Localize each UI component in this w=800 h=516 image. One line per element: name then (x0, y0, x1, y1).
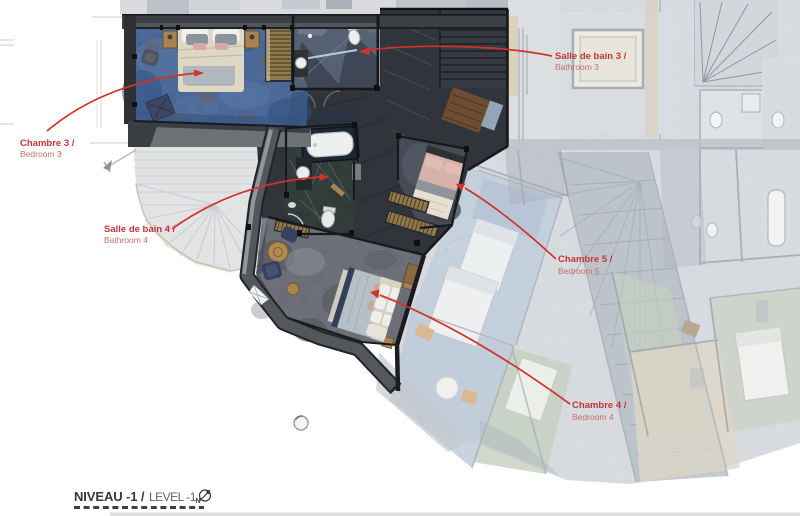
svg-text:Bedroom 4: Bedroom 4 (572, 412, 614, 422)
svg-text:Salle de bain 3 /: Salle de bain 3 / (555, 51, 627, 62)
svg-text:Bathroom 3: Bathroom 3 (555, 62, 599, 72)
svg-text:Bedroom 3: Bedroom 3 (20, 149, 62, 159)
svg-text:N: N (196, 498, 201, 505)
svg-text:LEVEL -1: LEVEL -1 (149, 490, 197, 504)
svg-text:Bathroom 4: Bathroom 4 (104, 235, 148, 245)
svg-text:Salle de bain 4 /: Salle de bain 4 / (104, 224, 176, 235)
svg-text:Chambre 3 /: Chambre 3 / (20, 138, 75, 149)
svg-text:Chambre 4 /: Chambre 4 / (572, 400, 627, 411)
svg-text:Chambre 5 /: Chambre 5 / (558, 254, 613, 265)
svg-text:Bedroom 5: Bedroom 5 (558, 266, 600, 276)
svg-text:NIVEAU -1 /: NIVEAU -1 / (74, 489, 145, 504)
